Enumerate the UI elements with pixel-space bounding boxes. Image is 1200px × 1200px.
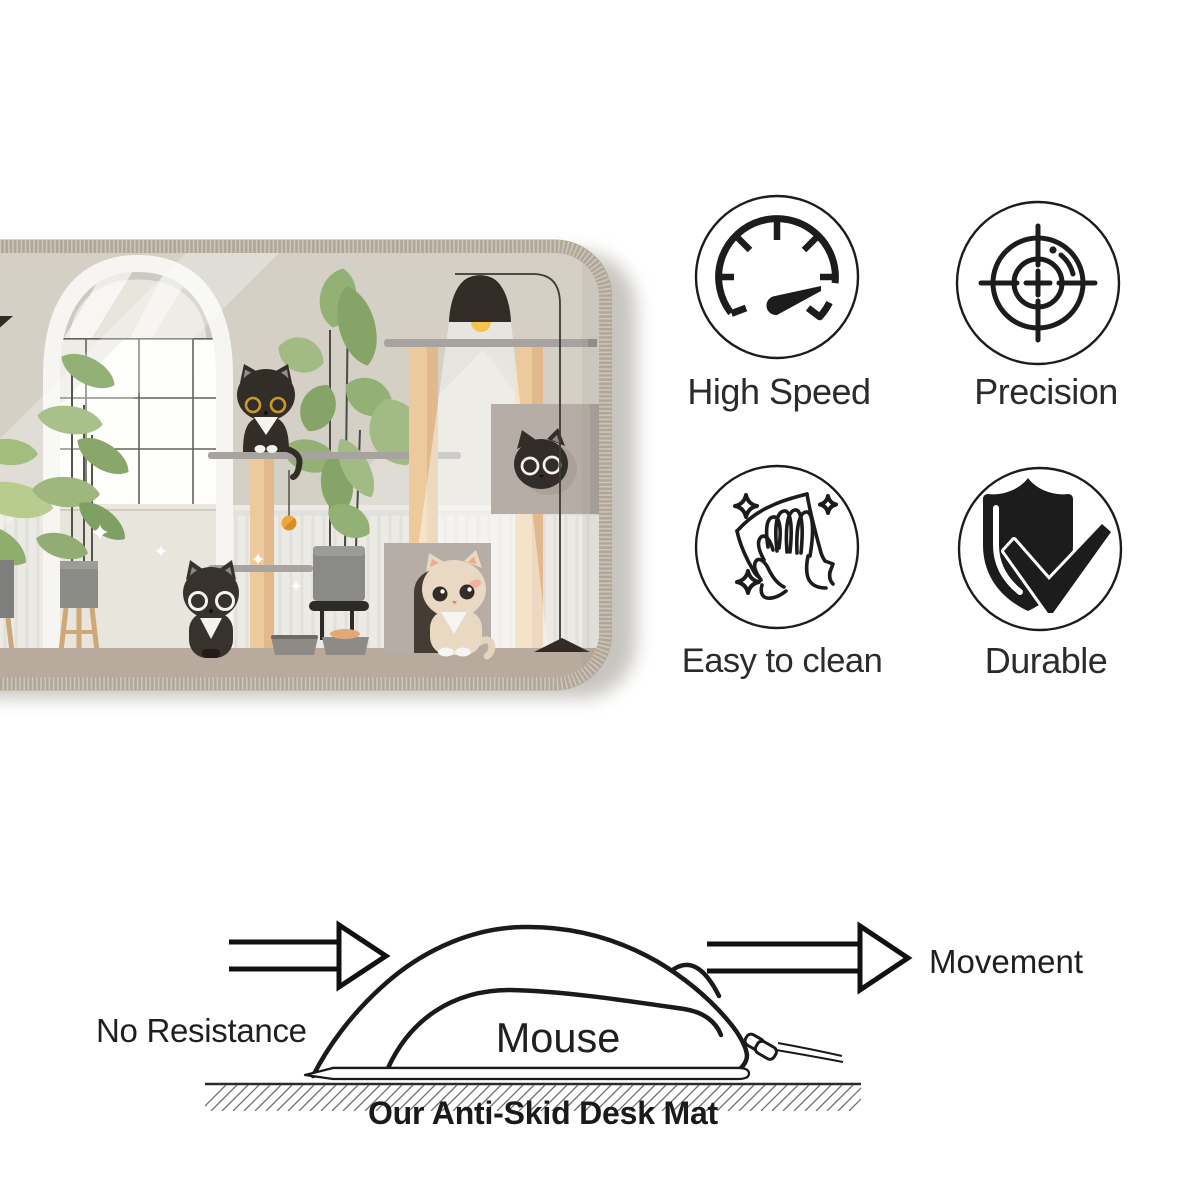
svg-text:Movement: Movement: [929, 943, 1083, 980]
svg-text:Precision: Precision: [974, 371, 1118, 412]
svg-text:Durable: Durable: [985, 640, 1108, 681]
svg-text:Easy to clean: Easy to clean: [682, 642, 883, 680]
svg-text:High Speed: High Speed: [687, 371, 870, 412]
svg-text:Mouse: Mouse: [496, 1014, 621, 1061]
svg-text:Our Anti-Skid Desk Mat: Our Anti-Skid Desk Mat: [368, 1095, 719, 1131]
svg-text:No Resistance: No Resistance: [96, 1012, 307, 1049]
